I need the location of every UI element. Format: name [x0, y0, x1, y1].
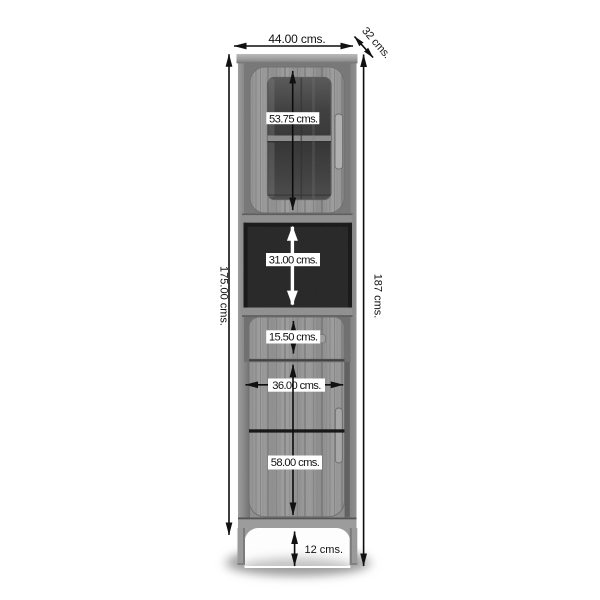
svg-text:187 cms.: 187 cms. — [372, 274, 384, 319]
svg-text:44.00 cms.: 44.00 cms. — [268, 32, 325, 46]
svg-text:15.50 cms.: 15.50 cms. — [269, 332, 318, 344]
svg-text:58.00 cms.: 58.00 cms. — [271, 457, 320, 469]
svg-text:36.00 cms.: 36.00 cms. — [272, 380, 321, 392]
svg-text:31.00 cms.: 31.00 cms. — [269, 254, 318, 266]
svg-text:12 cms.: 12 cms. — [305, 544, 344, 556]
svg-text:53.75 cms.: 53.75 cms. — [269, 113, 318, 125]
svg-text:175.00 cms.: 175.00 cms. — [218, 266, 230, 326]
